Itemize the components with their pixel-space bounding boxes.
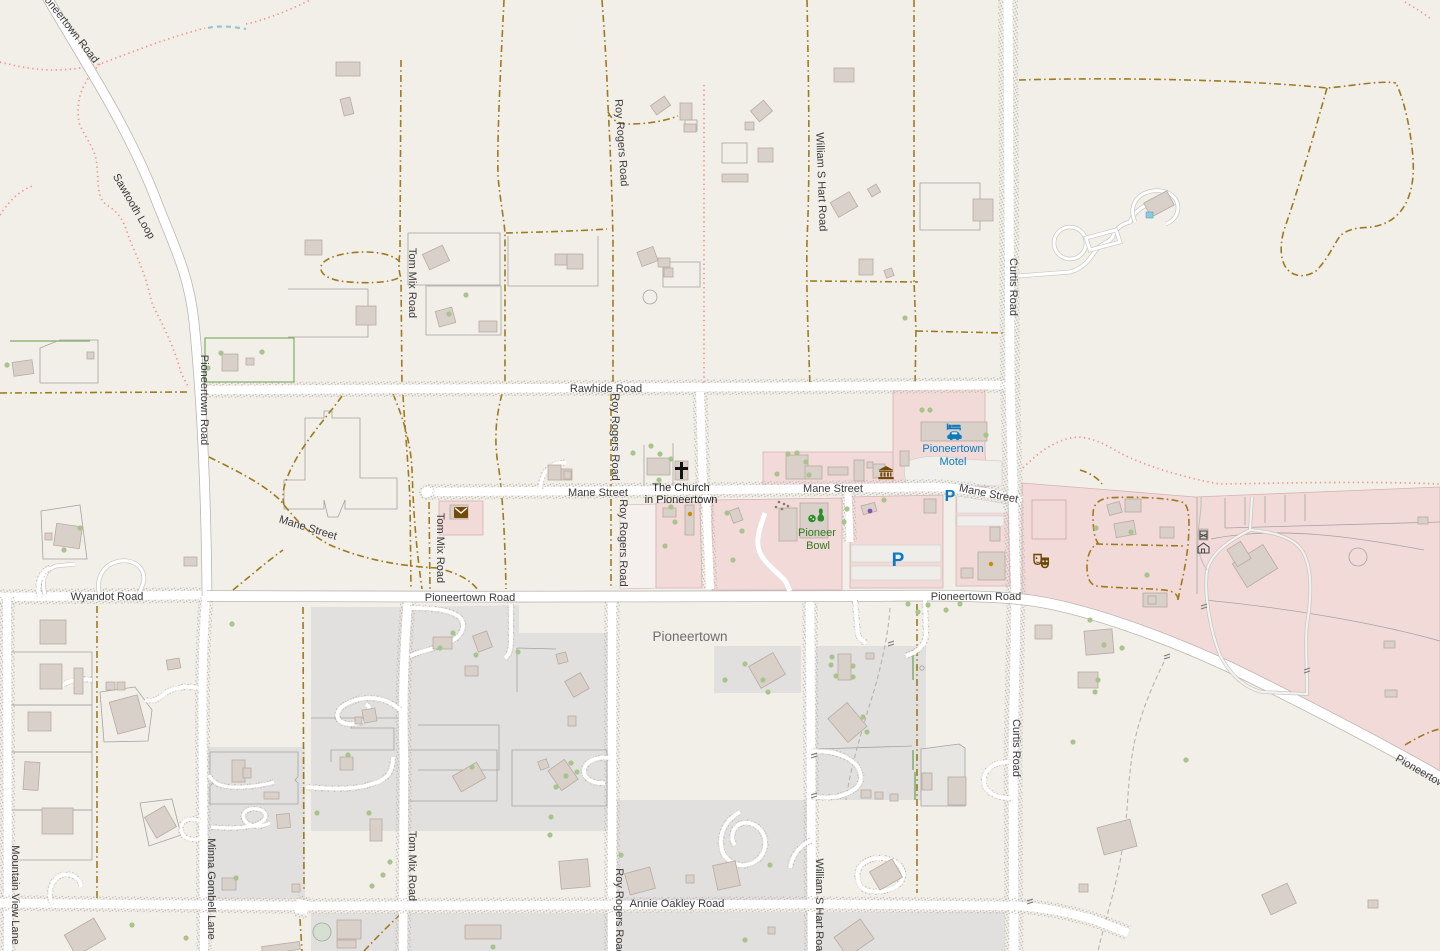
- svg-text:Roy Rogers Road: Roy Rogers Road: [609, 393, 621, 480]
- svg-text:Tom Mix Road: Tom Mix Road: [434, 513, 446, 583]
- svg-text:Roy Rogers Road: Roy Rogers Road: [613, 868, 625, 951]
- svg-text:The Church: The Church: [652, 482, 709, 494]
- svg-text:Pioneertown: Pioneertown: [652, 629, 727, 644]
- svg-text:William S Hart Road: William S Hart Road: [813, 858, 825, 951]
- svg-text:in Pioneertown: in Pioneertown: [645, 494, 718, 506]
- svg-text:Mane Street: Mane Street: [803, 483, 863, 495]
- svg-text:Minna Gombell Lane: Minna Gombell Lane: [205, 838, 217, 940]
- svg-text:Pioneertown Road: Pioneertown Road: [198, 355, 210, 446]
- svg-text:Pioneertown: Pioneertown: [922, 443, 983, 455]
- svg-text:Motel: Motel: [940, 456, 967, 468]
- svg-text:Bowl: Bowl: [806, 540, 830, 552]
- svg-text:Wyandot Road: Wyandot Road: [71, 591, 144, 603]
- svg-text:P: P: [945, 488, 956, 505]
- svg-text:Pioneertown Road: Pioneertown Road: [931, 591, 1022, 603]
- svg-text:Tom Mix Road: Tom Mix Road: [406, 248, 418, 318]
- svg-text:Curtis Road: Curtis Road: [1007, 258, 1019, 316]
- svg-text:Annie Oakley Road: Annie Oakley Road: [630, 898, 725, 910]
- svg-text:Curtis Road: Curtis Road: [1010, 719, 1022, 777]
- svg-text:Pioneertown Road: Pioneertown Road: [425, 592, 516, 604]
- svg-text:P: P: [892, 550, 905, 571]
- svg-text:Rawhide Road: Rawhide Road: [570, 383, 642, 395]
- svg-text:Tom Mix Road: Tom Mix Road: [406, 831, 418, 901]
- svg-text:Pioneer: Pioneer: [798, 527, 836, 539]
- svg-text:Mountain View Lane: Mountain View Lane: [9, 845, 21, 944]
- svg-text:Roy Rogers Road: Roy Rogers Road: [617, 499, 629, 586]
- svg-text:Mane Street: Mane Street: [568, 487, 628, 499]
